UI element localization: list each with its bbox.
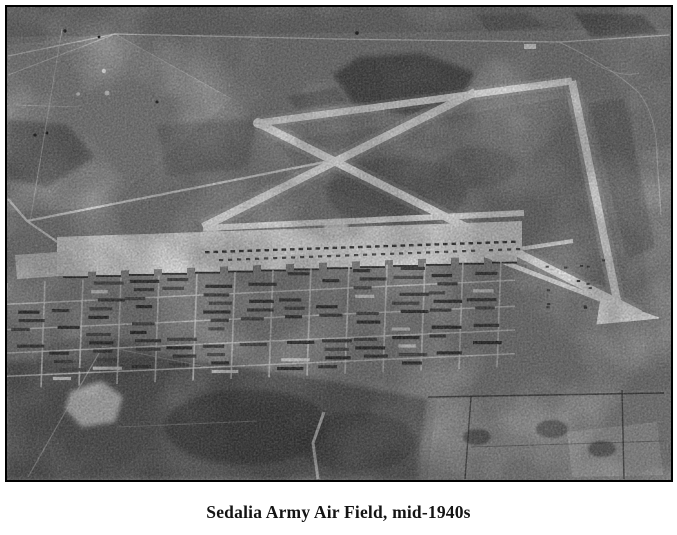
photo-caption: Sedalia Army Air Field, mid-1940s	[0, 502, 677, 523]
aerial-photograph	[5, 5, 673, 482]
film-grain-overlay	[7, 7, 671, 480]
aerial-photo-illustration	[7, 7, 671, 480]
